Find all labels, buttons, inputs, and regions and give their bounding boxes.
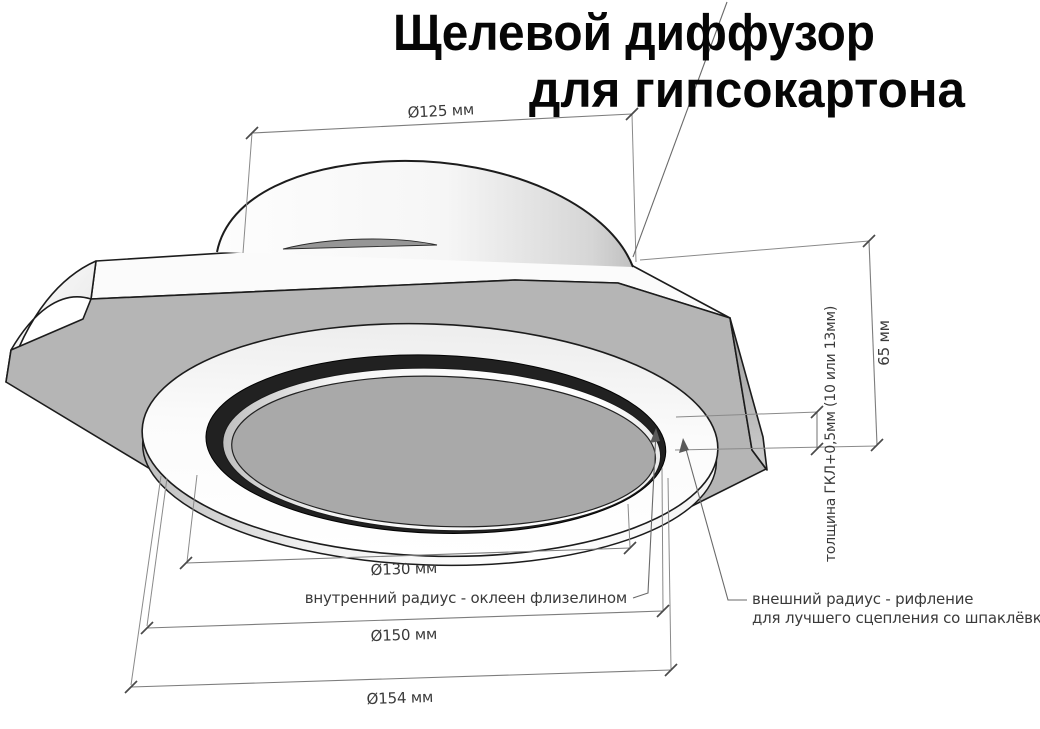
- annotation-outer-radius-line2: для лучшего сцепления со шпаклёвкой: [752, 609, 1040, 627]
- ext-line-height-top: [640, 241, 869, 260]
- duct-collar-dome: [217, 161, 633, 267]
- dim-label-plate-thickness: толщина ГКЛ+0,5мм (10 или 13мм): [823, 306, 839, 562]
- technical-drawing-canvas: Щелевой диффузор для гипсокартона Ø125 м…: [0, 0, 1040, 729]
- dim-label-duct-diameter: Ø125 мм: [407, 100, 474, 121]
- dim-label-outer-diameter: Ø150 мм: [370, 625, 437, 645]
- annotation-outer-radius-line1: внешний радиус - рифление: [752, 590, 973, 608]
- page-title-line2: для гипсокартона: [529, 61, 966, 118]
- annotation-inner-radius: внутренний радиус - оклеен флизелином: [305, 589, 627, 607]
- dim-line-overall: [131, 670, 671, 687]
- ext-line-duct-right: [632, 114, 636, 262]
- dim-label-inner-diameter: Ø130 мм: [370, 559, 437, 579]
- dim-label-overall-diameter: Ø154 мм: [366, 688, 433, 708]
- dim-label-height: 65 мм: [875, 320, 893, 366]
- page-title-line1: Щелевой диффузор: [393, 4, 875, 61]
- ext-line-overall-left: [131, 476, 161, 685]
- diffuser-drawing: Щелевой диффузор для гипсокартона Ø125 м…: [0, 0, 1040, 729]
